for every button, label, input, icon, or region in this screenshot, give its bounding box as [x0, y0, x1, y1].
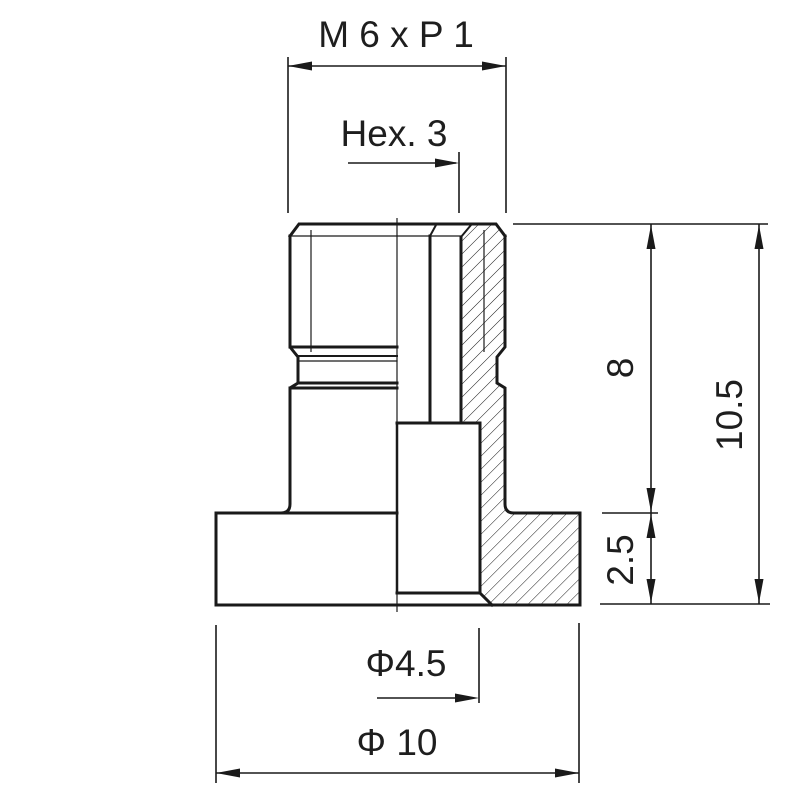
- thread-spec-label: M 6 x P 1: [318, 14, 474, 55]
- engineering-drawing-canvas: M 6 x P 1 Hex. 3 8 2.5 10.5: [0, 0, 798, 798]
- shank-height-label: 8: [600, 358, 641, 379]
- total-height-label: 10.5: [709, 379, 750, 451]
- flange-diameter-label: Φ 10: [357, 722, 438, 763]
- flange-height-label: 2.5: [600, 534, 641, 585]
- hex-socket-label: Hex. 3: [341, 113, 448, 154]
- technical-drawing-page: M 6 x P 1 Hex. 3 8 2.5 10.5: [0, 0, 798, 798]
- hole-diameter-label: Φ4.5: [366, 643, 447, 684]
